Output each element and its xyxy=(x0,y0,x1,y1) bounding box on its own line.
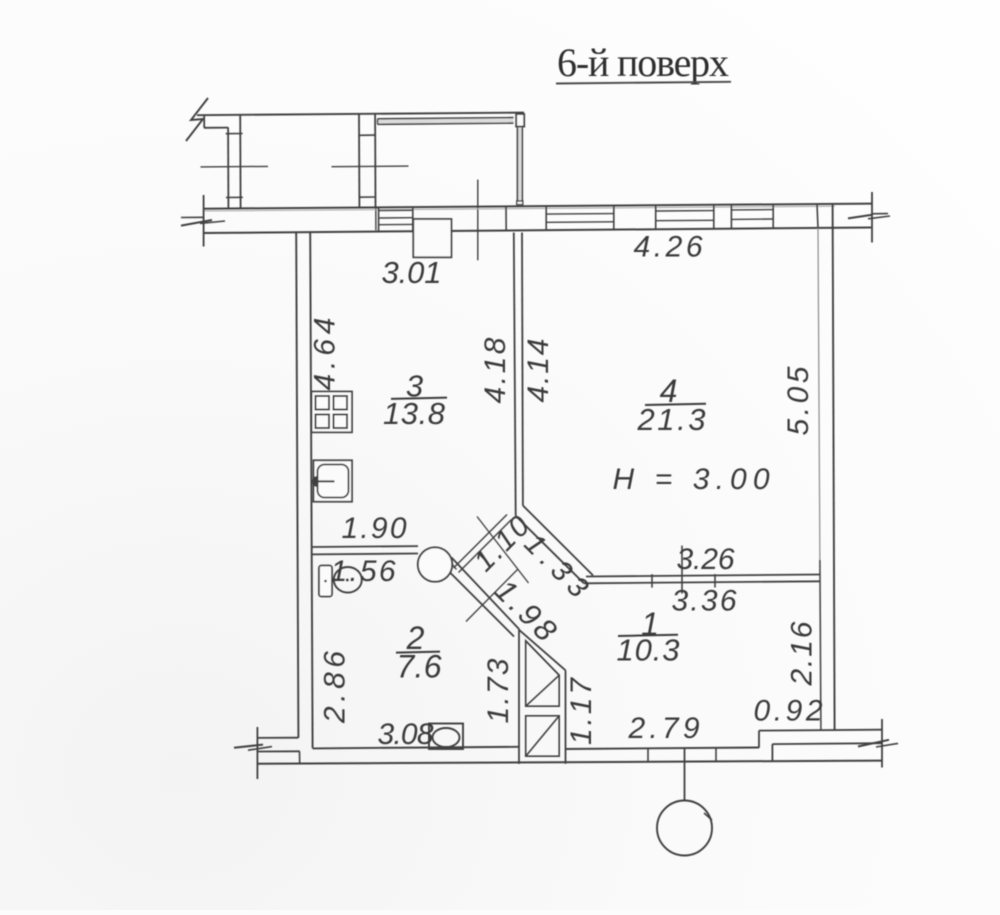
svg-text:2.86: 2.86 xyxy=(318,651,351,724)
svg-text:2.79: 2.79 xyxy=(628,712,700,745)
svg-text:3.36: 3.36 xyxy=(672,585,737,618)
svg-text:13.8: 13.8 xyxy=(383,396,446,431)
svg-text:10.3: 10.3 xyxy=(617,633,680,668)
svg-text:4.18: 4.18 xyxy=(479,337,512,403)
svg-text:0.92: 0.92 xyxy=(754,695,823,728)
svg-text:4.26: 4.26 xyxy=(634,231,703,264)
svg-text:1.56: 1.56 xyxy=(331,555,396,588)
svg-text:1.90: 1.90 xyxy=(342,512,407,545)
svg-text:7.6: 7.6 xyxy=(397,649,442,685)
svg-text:4.64: 4.64 xyxy=(308,318,341,391)
svg-text:1.73: 1.73 xyxy=(482,658,515,723)
svg-text:3.01: 3.01 xyxy=(382,255,442,290)
svg-text:21.3: 21.3 xyxy=(637,402,706,437)
svg-text:2.16: 2.16 xyxy=(785,621,818,686)
svg-text:4.14: 4.14 xyxy=(522,339,555,403)
svg-text:3.08: 3.08 xyxy=(378,718,434,751)
svg-text:1.17: 1.17 xyxy=(565,677,598,745)
svg-text:3.26: 3.26 xyxy=(677,543,735,576)
svg-text:5.05: 5.05 xyxy=(782,366,815,435)
svg-text:6-й поверх: 6-й поверх xyxy=(557,40,729,85)
